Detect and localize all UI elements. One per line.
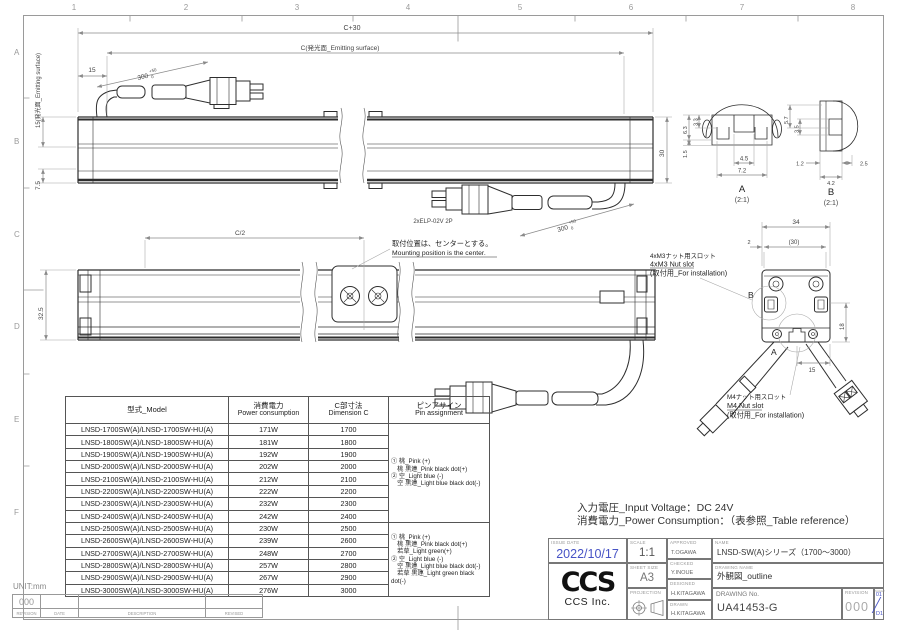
dim-30: 30 bbox=[659, 149, 666, 157]
section-a-label: A bbox=[739, 184, 746, 195]
drawing-no-cell: DRAWING No. UA41453-G bbox=[712, 588, 842, 620]
svg-text:0: 0 bbox=[570, 225, 574, 231]
svg-text:+50: +50 bbox=[149, 67, 158, 74]
drawn-label: DRAWN bbox=[670, 602, 688, 607]
m4-slot-label-en: M4 Nut slot bbox=[727, 401, 763, 410]
grid-row-D: D bbox=[14, 322, 20, 331]
scale-label: SCALE bbox=[630, 540, 646, 545]
svg-text:7.5: 7.5 bbox=[35, 181, 42, 190]
revision-strip-headers: REVISION DATE DESCRIPTION REVISED bbox=[13, 609, 263, 618]
svg-text:15(発光面_Emitting surface): 15(発光面_Emitting surface) bbox=[34, 53, 42, 128]
projection-label: PROJECTION bbox=[630, 590, 661, 595]
ccs-logo: CCS bbox=[549, 570, 626, 596]
grid-row-C: C bbox=[14, 230, 20, 239]
dim-7-5: 7.5 bbox=[35, 181, 42, 190]
m4-slot-note: (取付用_For installation) bbox=[727, 411, 804, 420]
grid-row-F: F bbox=[14, 508, 19, 517]
grid-col-5: 5 bbox=[518, 3, 522, 12]
section-a-scale: (2:1) bbox=[735, 197, 749, 204]
approved-cell: APPROVED T.OGAWA bbox=[667, 538, 712, 559]
svg-text:0: 0 bbox=[151, 74, 155, 80]
grid-col-2: 2 bbox=[184, 3, 188, 12]
drawn-cell: DRAWN H.KITAGAWA bbox=[667, 600, 712, 621]
model-spec-table: 型式_Model 消費電力Power consumption C部寸法Dimen… bbox=[65, 396, 490, 597]
sheet-size-value: A3 bbox=[628, 572, 666, 584]
grid-row-B: B bbox=[14, 137, 19, 146]
name-label: NAME bbox=[715, 540, 729, 545]
grid-col-7: 7 bbox=[740, 3, 744, 12]
col-header-pin: ピンアサインPin assignment bbox=[389, 397, 490, 424]
designed-cell: DESIGNED H.KITAGAWA bbox=[667, 579, 712, 600]
dim-300-right: 300 +50 0 bbox=[556, 218, 579, 234]
sheet-size-cell: SHEET SIZE A3 bbox=[627, 563, 667, 588]
dim-2: 2 bbox=[747, 240, 750, 246]
sheet-size-label: SHEET SIZE bbox=[630, 565, 658, 570]
power-notes: 入力電圧_Input Voltage：DC 24V 消費電力_Power Con… bbox=[577, 502, 855, 527]
drawing-name-cell: DRAWING NAME 外観図_outline bbox=[712, 563, 884, 588]
projection-cell: PROJECTION bbox=[627, 588, 667, 620]
view-top-side: 2xELP-02V 2P C+30 C(発光面_Emitting surface… bbox=[34, 25, 672, 236]
col-header-model: 型式_Model bbox=[66, 397, 229, 424]
pin-assignment-cell: ① 桃_Pink (+) 桃 黒連_Pink black dot(+) 若草_L… bbox=[389, 522, 490, 596]
designed-label: DESIGNED bbox=[670, 581, 695, 586]
dim-32-5: 32.5 bbox=[38, 307, 45, 320]
m4-slot-label-jp: M4ナット用スロット bbox=[727, 393, 786, 401]
pin-assignment-cell: ① 桃_Pink (+) 桃 黒連_Pink black dot(+)② 空_L… bbox=[389, 424, 490, 523]
issue-date-value: 2022/10/17 bbox=[549, 547, 626, 561]
revision-value: 000 bbox=[843, 600, 869, 614]
grid-row-A: A bbox=[14, 48, 19, 57]
grid-col-1: 1 bbox=[72, 3, 76, 12]
issue-date-cell: ISSUE DATE 2022/10/17 bbox=[548, 538, 627, 563]
table-row: LNSD-2500SW(A)/LNSD-2500SW-HU(A)230W2500… bbox=[66, 522, 490, 534]
drawn-value: H.KITAGAWA bbox=[671, 611, 705, 617]
section-b-scale: (2:1) bbox=[824, 200, 838, 207]
projection-symbol-icon bbox=[629, 596, 667, 620]
revision-strip: 000 REVISION DATE DESCRIPTION REVISED bbox=[12, 594, 263, 618]
dim-3-3: 3.3 bbox=[694, 118, 700, 126]
grid-col-8: 8 bbox=[851, 3, 855, 12]
scale-value: 1:1 bbox=[628, 547, 666, 559]
dim-1-5: 1.5 bbox=[683, 150, 689, 158]
svg-text:300: 300 bbox=[557, 224, 570, 234]
sheet-bottom-value: D1 bbox=[876, 611, 883, 617]
drawing-no-value: UA41453-G bbox=[717, 602, 778, 614]
approved-label: APPROVED bbox=[670, 540, 697, 545]
table-row: LNSD-1700SW(A)/LNSD-1700SW-HU(A)171W1700… bbox=[66, 424, 490, 436]
checked-label: CHECKED bbox=[670, 561, 693, 566]
dim-1-2: 1.2 bbox=[796, 162, 804, 168]
dim-15: 15 bbox=[88, 67, 96, 74]
revision-label: REVISION bbox=[845, 590, 868, 595]
model-table-body: LNSD-1700SW(A)/LNSD-1700SW-HU(A)171W1700… bbox=[66, 424, 490, 597]
checked-cell: CHECKED Y.INOUE bbox=[667, 559, 712, 580]
title-block: ISSUE DATE 2022/10/17 CCS CCS Inc. SCALE… bbox=[548, 538, 884, 620]
dim-2-5: 2.5 bbox=[860, 162, 868, 168]
dim-7-2: 7.2 bbox=[738, 169, 747, 175]
mounting-plate bbox=[332, 266, 397, 322]
dim-c-emitting: C(発光面_Emitting surface) bbox=[301, 43, 380, 52]
svg-text:300: 300 bbox=[137, 73, 150, 82]
drawing-no-label: DRAWING No. bbox=[716, 591, 759, 598]
revision-cell: REVISION 000 bbox=[842, 588, 874, 620]
view-back: C/2 取付位置は、センターとする。 Mounting position is … bbox=[38, 230, 655, 413]
grid-row-E: E bbox=[14, 415, 19, 424]
mounting-note-en: Mounting position is the center. bbox=[392, 250, 486, 257]
sheet-indicator-cell: SHEET 01 D1 bbox=[874, 588, 884, 620]
input-voltage-note: 入力電圧_Input Voltage：DC 24V bbox=[577, 502, 855, 515]
issue-date-label: ISSUE DATE bbox=[551, 540, 579, 545]
svg-text:+50: +50 bbox=[568, 218, 577, 225]
dim-c30: C+30 bbox=[344, 25, 361, 32]
connector-type-label: 2xELP-02V 2P bbox=[413, 219, 452, 225]
dim-5-7: 5.7 bbox=[784, 116, 790, 124]
approved-value: T.OGAWA bbox=[671, 550, 696, 556]
dim-34: 34 bbox=[792, 219, 800, 226]
grid-col-4: 4 bbox=[406, 3, 410, 12]
dim-300-left: 300 +50 0 bbox=[136, 67, 159, 82]
logo-cell: CCS CCS Inc. bbox=[548, 563, 627, 620]
grid-col-6: 6 bbox=[629, 3, 633, 12]
dim-6-3: 6.3 bbox=[683, 126, 689, 134]
section-a: 6.3 3.3 1.5 4.5 7.2 A (2:1) bbox=[683, 105, 782, 204]
dim-18: 18 bbox=[840, 323, 846, 330]
sheet-top-value: 01 bbox=[876, 592, 882, 598]
marker-a: A bbox=[771, 347, 777, 357]
dim-4-5: 4.5 bbox=[740, 157, 749, 163]
dim-c2: C/2 bbox=[235, 230, 246, 237]
svg-text:30: 30 bbox=[659, 149, 666, 157]
col-header-power: 消費電力Power consumption bbox=[229, 397, 309, 424]
mounting-note-jp: 取付位置は、センターとする。 bbox=[392, 239, 492, 248]
section-b-label: B bbox=[828, 187, 834, 198]
checked-value: Y.INOUE bbox=[671, 570, 693, 576]
section-b: 5.7 3.5 1.2 2.5 4.2 B (2:1) bbox=[784, 101, 868, 207]
name-cell: NAME LNSD-SW(A)シリーズ（1700～3000） bbox=[712, 538, 884, 563]
dim-3-5: 3.5 bbox=[795, 125, 801, 133]
dim-emitting-15: 15(発光面_Emitting surface) bbox=[34, 53, 42, 128]
m3-slot-note: (取付用_For installation) bbox=[650, 269, 727, 278]
dim-15-end: 15 bbox=[809, 368, 816, 374]
product-name-value: LNSD-SW(A)シリーズ（1700～3000） bbox=[717, 547, 856, 558]
grid-col-3: 3 bbox=[295, 3, 299, 12]
cable-connector-left bbox=[96, 78, 263, 118]
revision-strip-value: 000 bbox=[13, 595, 41, 609]
m3-slot-label-en: 4xM3 Nut slot bbox=[650, 260, 694, 269]
cable-connector-right bbox=[432, 183, 625, 214]
col-header-dimension: C部寸法Dimension C bbox=[309, 397, 389, 424]
end-view: B A 34 2 (30) 18 15 4xM3ナット用スロット 4xM3 Nu… bbox=[650, 219, 872, 439]
svg-text:32.5: 32.5 bbox=[38, 307, 45, 320]
unit-label: UNIT:mm bbox=[13, 582, 46, 591]
designed-value: H.KITAGAWA bbox=[671, 591, 705, 597]
power-consumption-note: 消費電力_Power Consumption：（表参照_Table refere… bbox=[577, 515, 855, 528]
dim-30p: (30) bbox=[789, 240, 800, 246]
drawing-name-value: 外観図_outline bbox=[717, 570, 772, 582]
drawing-sheet: 12345678ABCDEF bbox=[0, 0, 900, 636]
scale-cell: SCALE 1:1 bbox=[627, 538, 667, 563]
